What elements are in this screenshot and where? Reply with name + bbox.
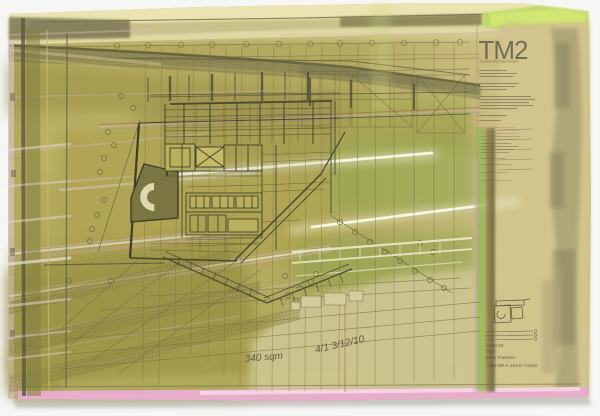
svg-text:Level 04: Level 04: [486, 343, 504, 348]
svg-text:Floor Finishes: Floor Finishes: [486, 355, 516, 360]
svg-text:TM2: TM2: [486, 349, 496, 354]
svg-text:Transforming Tate Modern: Transforming Tate Modern: [479, 60, 519, 64]
svg-text:+OM-DB-A-163-K-7440G: +OM-DB-A-163-K-7440G: [486, 363, 538, 368]
